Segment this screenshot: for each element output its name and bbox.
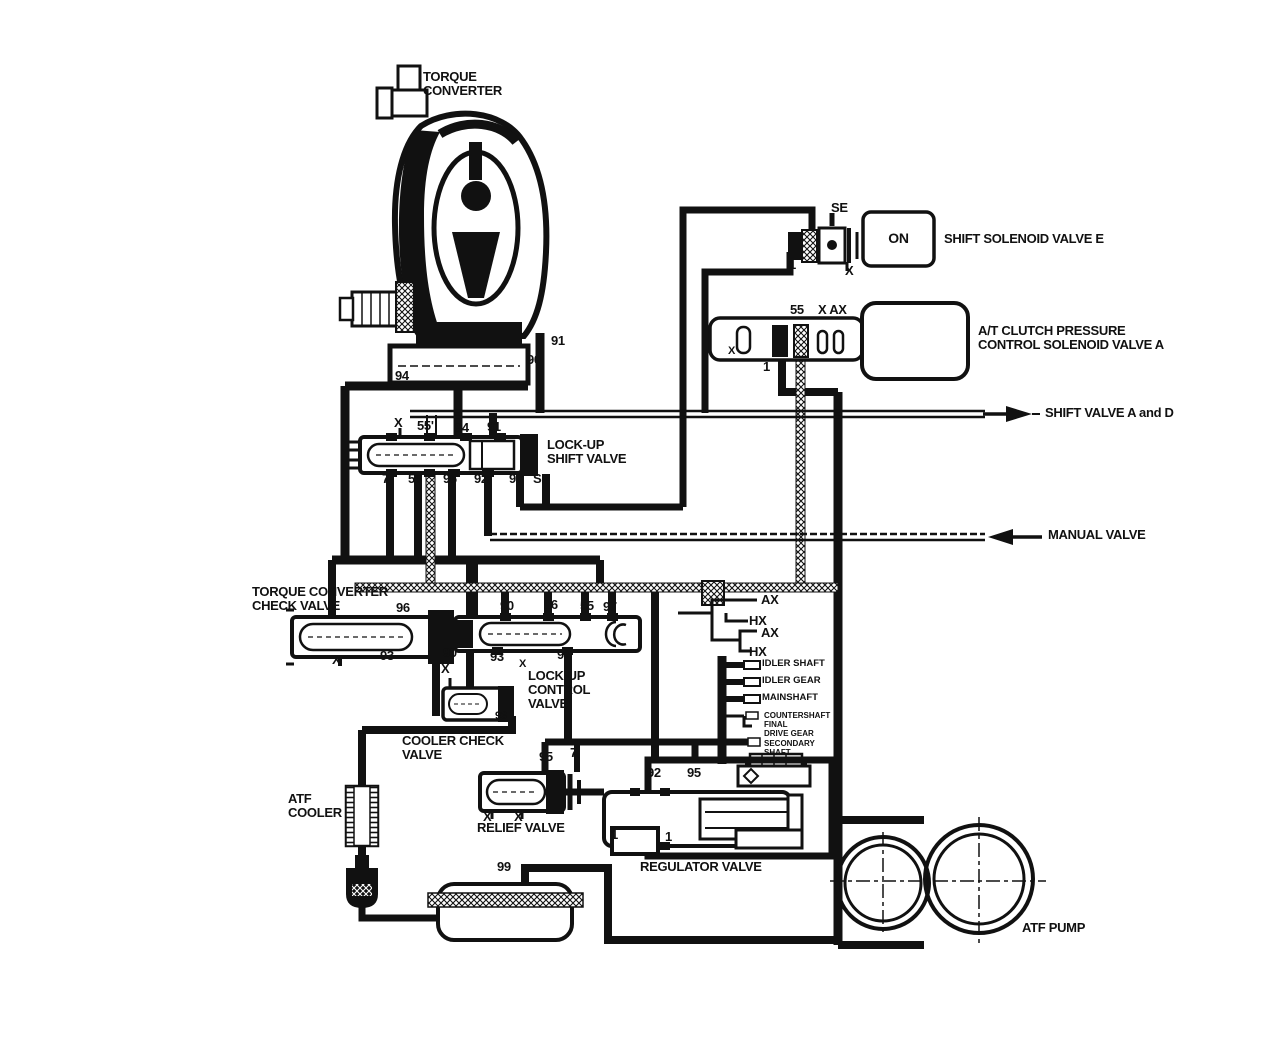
port-label-1-solenoid-e: 1 [789, 258, 796, 272]
port-label-95-relief: 95 [539, 750, 553, 764]
port-label-se-solenoid: SE [831, 201, 848, 215]
port-label-92-lsv: 92 [474, 472, 488, 486]
port-label-55-solenoid-a: 55 [790, 303, 804, 317]
relief-valve-drawing [480, 770, 604, 814]
torque-converter-drawing [340, 66, 546, 383]
port-label-ax-1: AX [761, 593, 778, 607]
port-label-96-lcv: 96 [544, 598, 558, 612]
port-label-1-reg-2: 1 [665, 830, 672, 844]
label-idler-shaft: IDLER SHAFT [762, 659, 825, 669]
label-at-clutch-solenoid: A/T CLUTCH PRESSURE CONTROL SOLENOID VAL… [978, 324, 1164, 352]
port-label-hx-2: HX [749, 645, 766, 659]
ax-hx-branches [678, 600, 757, 651]
lockup-control-valve-drawing [447, 613, 640, 655]
label-idler-gear: IDLER GEAR [762, 676, 821, 686]
shift-valve-arrow-icon [983, 406, 1040, 422]
shaft-branches [722, 656, 752, 764]
label-final-drive-gear: FINAL DRIVE GEAR [764, 720, 814, 738]
label-cooler-check-valve: COOLER CHECK VALVE [402, 734, 504, 762]
port-label-92-lcv: 92 [557, 648, 571, 662]
port-label-94-lsv: 94 [455, 421, 469, 435]
port-label-96-lsv: 96 [443, 472, 457, 486]
port-label-x-ccv: X [441, 662, 449, 676]
port-label-96-tccv: 96 [396, 601, 410, 615]
port-label-91-tc: 91 [551, 334, 565, 348]
port-label-90-lcv-bot: 90 [443, 646, 457, 660]
port-label-se-lsv: SE [533, 472, 550, 486]
port-label-ax-2: AX [761, 626, 778, 640]
label-lockup-control-valve: LOCK-UP CONTROL VALVE [528, 669, 590, 711]
port-label-x-lsv-top: X [394, 416, 402, 430]
label-shift-solenoid-e: SHIFT SOLENOID VALVE E [944, 232, 1104, 246]
solenoid-on-indicator: ON [863, 212, 934, 266]
port-label-92-reg: 92 [647, 766, 661, 780]
port-label-x-relief-1: X [483, 810, 491, 824]
label-secondary-shaft: SECONDARY SHAFT [764, 739, 815, 757]
port-label-7-lsv: 7 [382, 472, 389, 486]
tc-check-valve-drawing [286, 610, 454, 664]
port-label-55-lsv: 55 [408, 472, 422, 486]
label-atf-pump: ATF PUMP [1022, 921, 1085, 935]
label-manual-valve: MANUAL VALVE [1048, 528, 1146, 542]
label-atf-cooler: ATF COOLER [288, 792, 342, 820]
port-label-97-lcv: 97 [603, 600, 617, 614]
atf-cooler-drawing [346, 786, 378, 908]
strainer-drawing [428, 884, 583, 940]
port-label-95-reg: 95 [687, 766, 701, 780]
port-label-90-tc: 90 [527, 353, 541, 367]
port-label-93-lcv: 93 [490, 650, 504, 664]
atf-pump-drawing [830, 817, 1046, 943]
port-label-x-lcv-2: X [519, 659, 526, 671]
label-countershaft: COUNTERSHAFT [764, 711, 830, 720]
port-label-55-prime: 55' [417, 419, 434, 433]
port-label-x-relief-2: X [514, 810, 522, 824]
port-label-91-lsv: 91 [487, 420, 501, 434]
port-label-x-ax: X AX [818, 303, 847, 317]
port-label-x-lcv-1: X [466, 653, 473, 665]
port-label-x-tccv: X [332, 653, 340, 667]
port-label-93-tccv: 93 [380, 649, 394, 663]
port-label-55-lcv: 55 [580, 599, 594, 613]
manual-valve-arrow-icon [988, 529, 1042, 545]
label-mainshaft: MAINSHAFT [762, 693, 818, 703]
label-tc-check-valve: TORQUE CONVERTER CHECK VALVE [252, 585, 388, 613]
port-label-94-tc: 94 [395, 369, 409, 383]
port-label-93-lsv: 93 [509, 472, 523, 486]
label-torque-converter: TORQUE CONVERTER [423, 70, 502, 98]
label-regulator-valve: REGULATOR VALVE [640, 860, 762, 874]
port-label-x-solenoid-a: X [728, 346, 735, 358]
hydraulic-circuit-diagram: TORQUE CONVERTER SHIFT SOLENOID VALVE E … [0, 0, 1280, 1054]
port-label-7-relief: 7 [570, 746, 577, 760]
port-label-93-ccv: 93 [495, 711, 507, 723]
label-shift-valve-ad: SHIFT VALVE A and D [1045, 406, 1174, 420]
port-label-90-lcv-top: 90 [500, 599, 514, 613]
label-lockup-shift-valve: LOCK-UP SHIFT VALVE [547, 438, 626, 466]
shaft-port-glyphs [744, 661, 760, 746]
port-label-1-reg-1: 1 [611, 828, 618, 842]
port-label-x-solenoid-e: X [845, 264, 853, 278]
regulator-valve-drawing [604, 760, 832, 856]
port-label-1-solenoid-a: 1 [763, 360, 770, 374]
port-label-99-strainer: 99 [497, 860, 511, 874]
